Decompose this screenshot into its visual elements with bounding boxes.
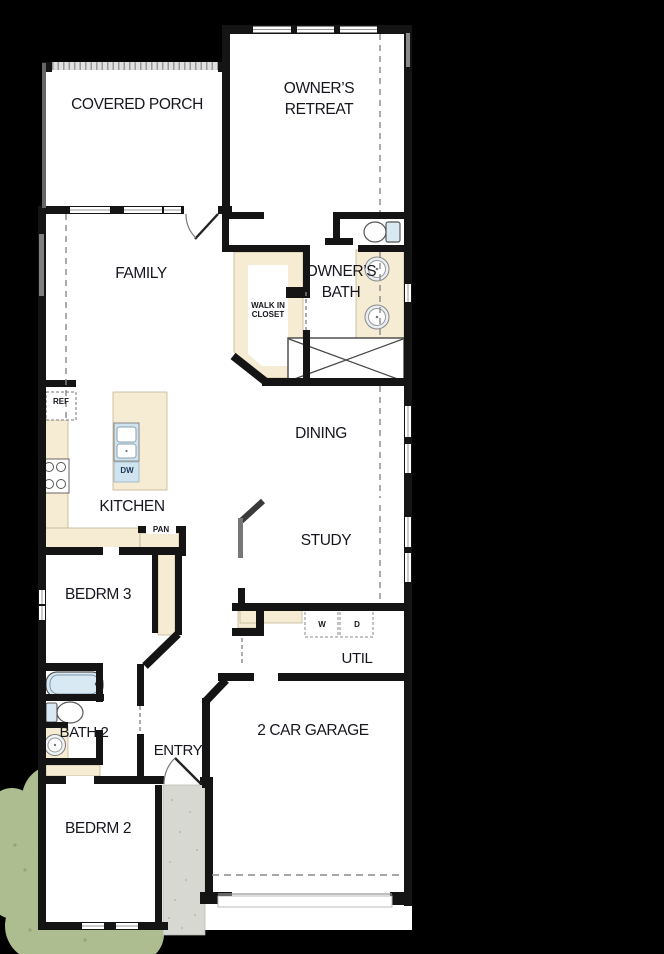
pantry-shelf: [140, 533, 179, 549]
room-label-study: STUDY: [276, 531, 376, 552]
garage-door: [218, 894, 392, 907]
room-label-walk-in-closet: WALK IN CLOSET: [241, 301, 295, 319]
bath2-tub: [46, 672, 103, 697]
room-label-owners-retreat: OWNER’S RETREAT: [268, 79, 370, 121]
island-sink: [114, 423, 139, 461]
floor-porch: [42, 62, 228, 213]
floor-plan-drawing: [0, 0, 664, 954]
room-label-dining: DINING: [271, 424, 371, 445]
room-label-bedrm2: BEDRM 2: [48, 819, 148, 840]
bedrm3-closet-shelf: [158, 553, 175, 635]
front-walkway: [163, 785, 205, 935]
util-counter: [240, 610, 302, 623]
label-washer: W: [313, 620, 331, 629]
range-stove: [42, 459, 69, 493]
room-label-bath2: BATH 2: [58, 723, 110, 743]
floor-plan-canvas: COVERED PORCH OWNER’S RETREAT FAMILY OWN…: [0, 0, 664, 954]
room-label-entry: ENTRY: [138, 741, 218, 761]
room-label-kitchen: KITCHEN: [82, 497, 182, 518]
label-dishwasher: DW: [115, 466, 139, 475]
label-refrigerator: REF: [48, 397, 74, 406]
label-dryer: D: [348, 620, 366, 629]
owners-toilet: [364, 222, 386, 242]
room-label-bedrm3: BEDRM 3: [48, 585, 148, 606]
bedrm2-closet-shelf: [46, 765, 100, 776]
label-pantry: PAN: [146, 525, 176, 534]
room-label-covered-porch: COVERED PORCH: [67, 95, 207, 116]
floor-retreat: [222, 25, 412, 219]
room-label-garage: 2 CAR GARAGE: [233, 721, 393, 742]
room-label-family: FAMILY: [91, 264, 191, 285]
room-label-util: UTIL: [307, 649, 407, 669]
room-label-owners-bath: OWNER’S BATH: [291, 262, 391, 304]
bath2-toilet: [46, 702, 83, 723]
